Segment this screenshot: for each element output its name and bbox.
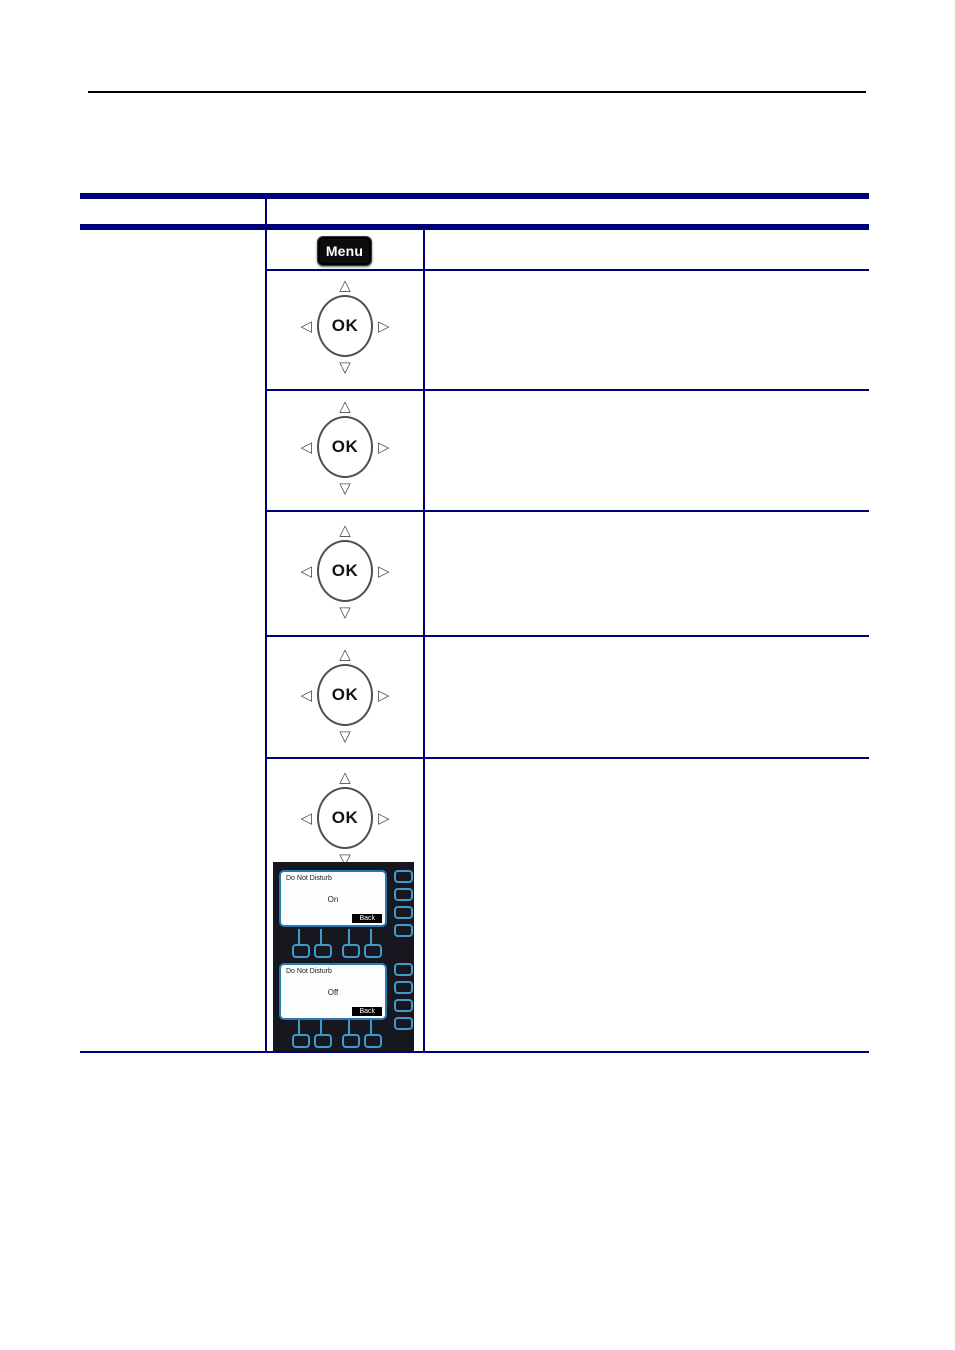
table-header-bottom-border <box>80 224 869 230</box>
table-row-divider <box>265 757 869 759</box>
softkey-right-icon <box>394 924 413 937</box>
table-column-divider-2 <box>423 230 425 1052</box>
softkey-stem <box>348 1020 350 1035</box>
arrow-right-icon: ▷ <box>378 688 390 702</box>
softkey-bottom-icon <box>292 944 310 958</box>
table-row-divider <box>265 635 869 637</box>
ok-nav-pad-image: △ ◁ OK ▷ ▽ <box>295 770 395 866</box>
lcd-value: Off <box>281 988 385 997</box>
ok-key: OK <box>317 664 373 726</box>
softkey-stem <box>320 1020 322 1035</box>
table-row-divider <box>265 389 869 391</box>
ok-key: OK <box>317 540 373 602</box>
softkey-right-icon <box>394 999 413 1012</box>
arrow-right-icon: ▷ <box>378 811 390 825</box>
arrow-up-icon: △ <box>339 278 351 292</box>
table-bottom-border <box>80 1051 869 1053</box>
table-row-divider <box>265 510 869 512</box>
menu-key-label: Menu <box>326 243 363 259</box>
softkey-stem <box>370 929 372 945</box>
menu-key-image: Menu <box>317 236 372 266</box>
ok-nav-pad-image: △ ◁ OK ▷ ▽ <box>295 399 395 495</box>
arrow-down-icon: ▽ <box>339 481 351 495</box>
arrow-up-icon: △ <box>339 647 351 661</box>
arrow-left-icon: ◁ <box>300 811 312 825</box>
arrow-left-icon: ◁ <box>300 440 312 454</box>
lcd-screen: Do Not Disturb On Back <box>279 870 387 927</box>
softkey-right-icon <box>394 888 413 901</box>
softkey-stem <box>298 1020 300 1035</box>
ok-nav-pad-image: △ ◁ OK ▷ ▽ <box>295 523 395 619</box>
arrow-up-icon: △ <box>339 770 351 784</box>
arrow-up-icon: △ <box>339 523 351 537</box>
arrow-up-icon: △ <box>339 399 351 413</box>
ok-key: OK <box>317 295 373 357</box>
ok-nav-pad-image: △ ◁ OK ▷ ▽ <box>295 278 395 374</box>
softkey-stem <box>348 929 350 945</box>
softkey-right-icon <box>394 870 413 883</box>
softkey-right-icon <box>394 963 413 976</box>
softkey-bottom-icon <box>292 1034 310 1048</box>
arrow-down-icon: ▽ <box>339 605 351 619</box>
arrow-down-icon: ▽ <box>339 729 351 743</box>
arrow-right-icon: ▷ <box>378 319 390 333</box>
back-softkey-label: Back <box>352 1007 382 1016</box>
ok-nav-pad-image: △ ◁ OK ▷ ▽ <box>295 647 395 743</box>
page-top-rule <box>88 91 866 93</box>
arrow-left-icon: ◁ <box>300 688 312 702</box>
arrow-down-icon: ▽ <box>339 360 351 374</box>
ok-key: OK <box>317 416 373 478</box>
softkey-bottom-icon <box>364 1034 382 1048</box>
softkey-bottom-icon <box>342 1034 360 1048</box>
arrow-right-icon: ▷ <box>378 440 390 454</box>
arrow-left-icon: ◁ <box>300 564 312 578</box>
softkey-stem <box>320 929 322 945</box>
table-row-divider <box>265 269 869 271</box>
softkey-bottom-icon <box>314 944 332 958</box>
lcd-panel-image-on: Do Not Disturb On Back <box>273 862 414 958</box>
softkey-right-icon <box>394 981 413 994</box>
lcd-value: On <box>281 895 385 904</box>
softkey-stem <box>298 929 300 945</box>
manual-page: Menu △ ◁ OK ▷ ▽ △ ◁ OK ▷ ▽ △ ◁ OK ▷ ▽ △ … <box>0 0 955 1350</box>
arrow-right-icon: ▷ <box>378 564 390 578</box>
back-softkey-label: Back <box>352 914 382 923</box>
lcd-title: Do Not Disturb <box>286 875 332 882</box>
table-top-border <box>80 193 869 199</box>
ok-key: OK <box>317 787 373 849</box>
table-column-divider-1 <box>265 199 267 1052</box>
arrow-left-icon: ◁ <box>300 319 312 333</box>
lcd-title: Do Not Disturb <box>286 968 332 975</box>
softkey-right-icon <box>394 906 413 919</box>
softkey-stem <box>370 1020 372 1035</box>
softkey-bottom-icon <box>364 944 382 958</box>
softkey-bottom-icon <box>342 944 360 958</box>
lcd-screen: Do Not Disturb Off Back <box>279 963 387 1020</box>
softkey-right-icon <box>394 1017 413 1030</box>
softkey-bottom-icon <box>314 1034 332 1048</box>
lcd-panel-image-off: Do Not Disturb Off Back <box>273 958 414 1051</box>
